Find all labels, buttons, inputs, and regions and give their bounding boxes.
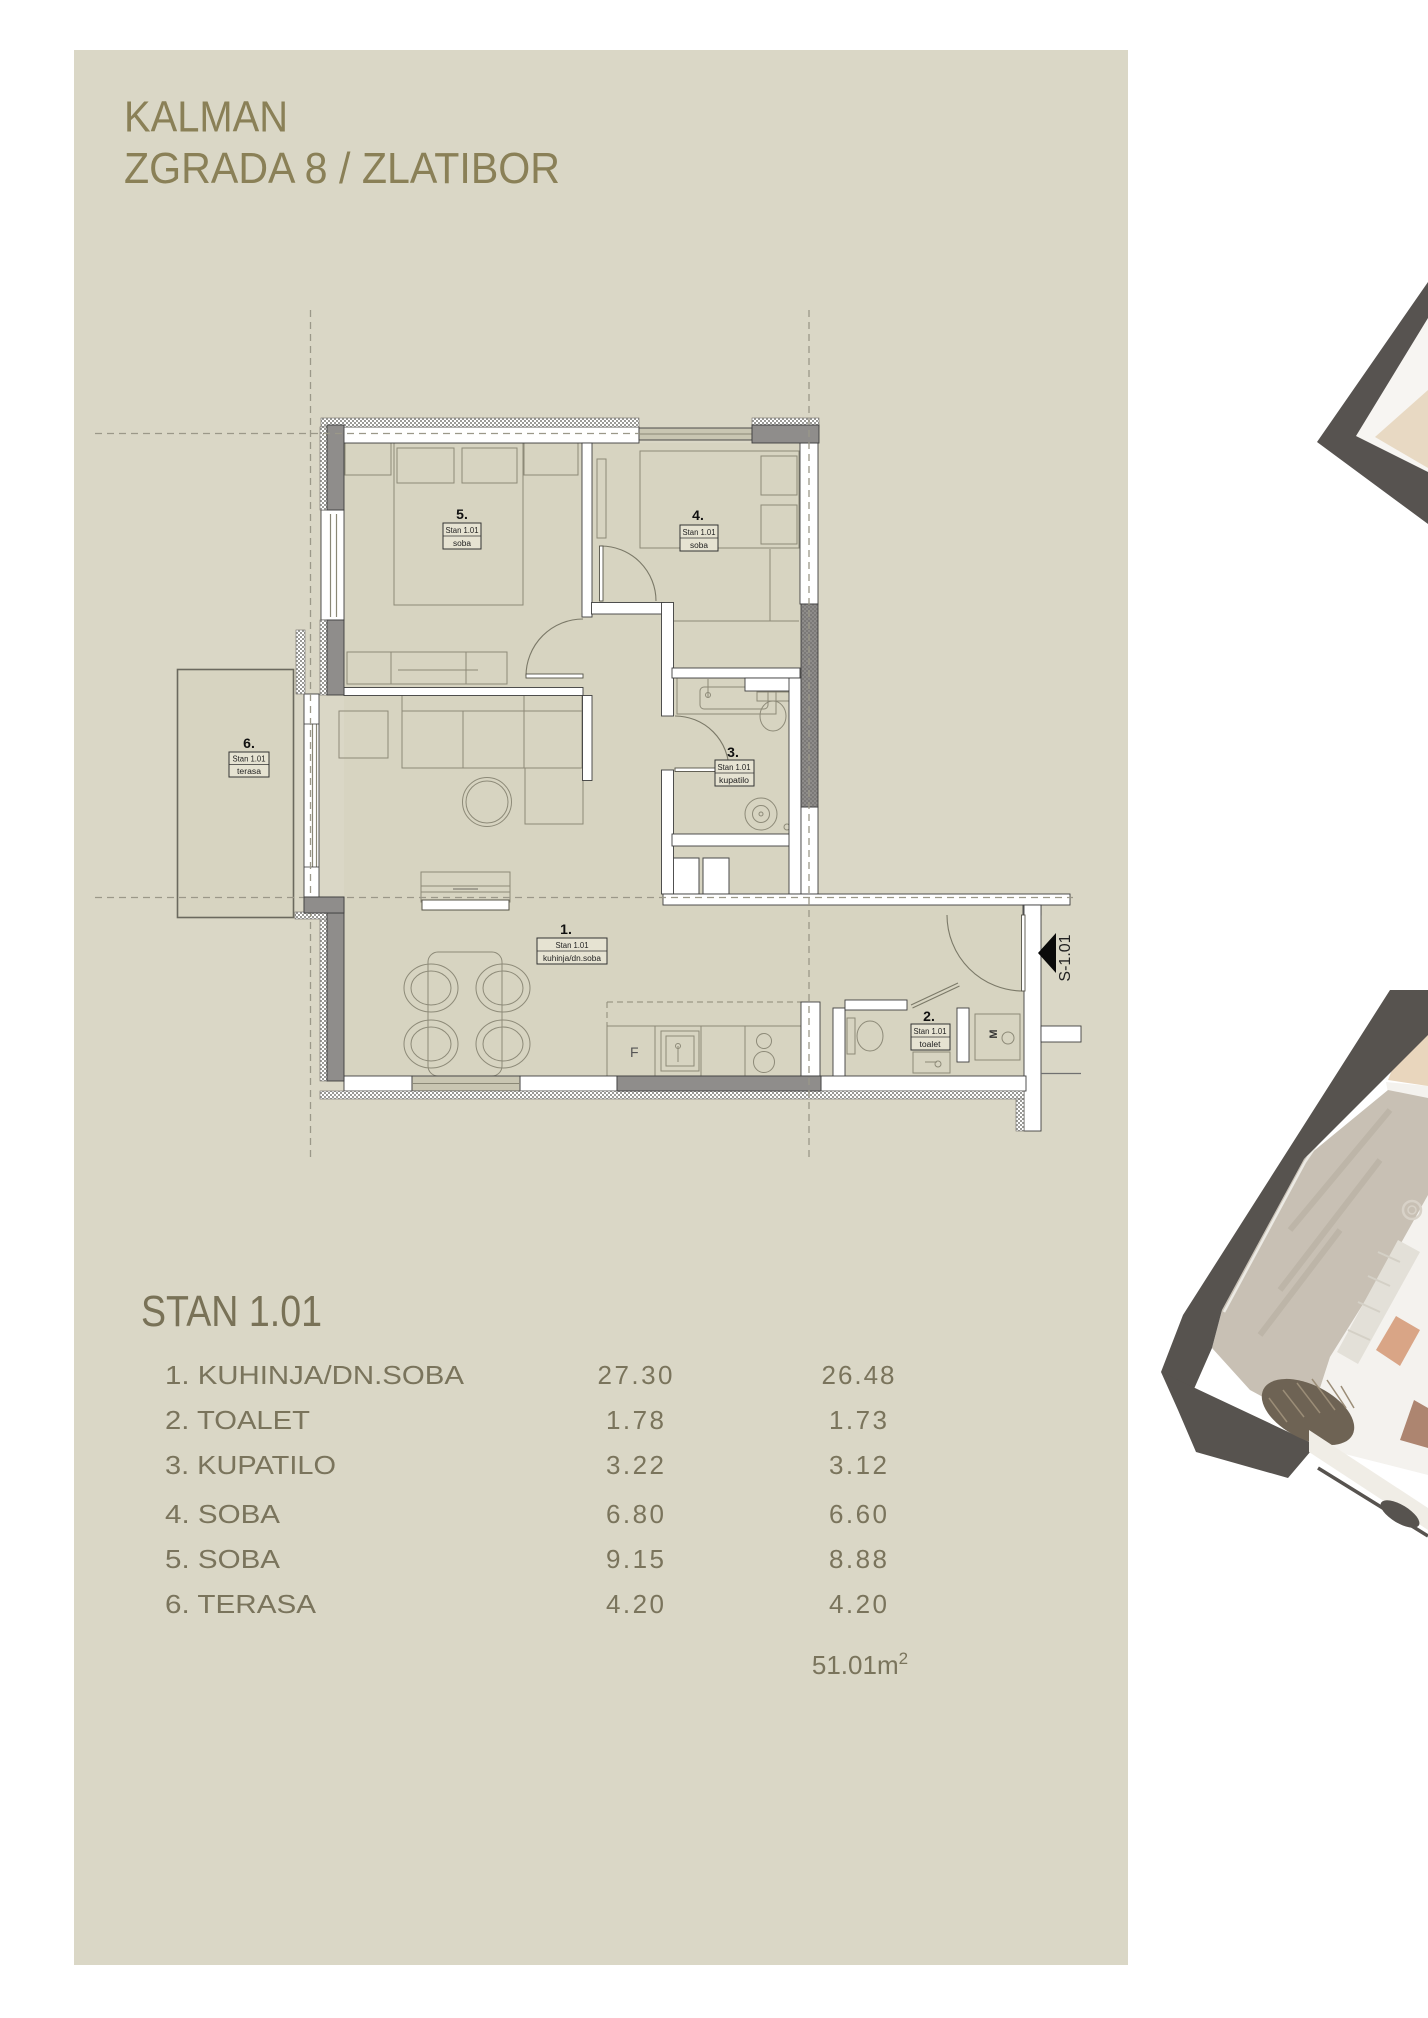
svg-text:51.01m2: 51.01m2 bbox=[812, 1649, 908, 1680]
svg-text:4. SOBA: 4. SOBA bbox=[165, 1499, 281, 1529]
svg-text:toalet: toalet bbox=[920, 1040, 942, 1049]
svg-text:6.80: 6.80 bbox=[606, 1499, 664, 1529]
svg-text:F: F bbox=[630, 1044, 639, 1060]
svg-text:8.88: 8.88 bbox=[829, 1544, 887, 1574]
svg-text:3.12: 3.12 bbox=[829, 1450, 887, 1480]
svg-text:kuhinja/dn.soba: kuhinja/dn.soba bbox=[543, 954, 602, 963]
svg-text:4.20: 4.20 bbox=[606, 1589, 664, 1619]
svg-text:Stan 1.01: Stan 1.01 bbox=[718, 763, 752, 772]
svg-text:M: M bbox=[988, 1029, 1000, 1038]
svg-text:3.22: 3.22 bbox=[606, 1450, 664, 1480]
svg-text:kupatilo: kupatilo bbox=[719, 776, 750, 785]
svg-text:9.15: 9.15 bbox=[606, 1544, 664, 1574]
svg-text:soba: soba bbox=[690, 541, 709, 550]
svg-text:soba: soba bbox=[453, 539, 472, 548]
svg-text:ZGRADA 8 / ZLATIBOR: ZGRADA 8 / ZLATIBOR bbox=[124, 144, 560, 193]
svg-text:5. SOBA: 5. SOBA bbox=[165, 1544, 281, 1574]
svg-text:KALMAN: KALMAN bbox=[124, 93, 288, 142]
svg-text:1. KUHINJA/DN.SOBA: 1. KUHINJA/DN.SOBA bbox=[165, 1360, 465, 1390]
svg-text:Stan 1.01: Stan 1.01 bbox=[446, 526, 480, 535]
svg-text:1.78: 1.78 bbox=[606, 1405, 664, 1435]
svg-text:Stan 1.01: Stan 1.01 bbox=[233, 755, 267, 764]
svg-text:6. TERASA: 6. TERASA bbox=[165, 1589, 317, 1619]
svg-text:4.: 4. bbox=[692, 507, 704, 523]
svg-text:4.20: 4.20 bbox=[829, 1589, 887, 1619]
svg-text:1.73: 1.73 bbox=[829, 1405, 887, 1435]
svg-text:3.: 3. bbox=[727, 744, 739, 760]
svg-text:STAN 1.01: STAN 1.01 bbox=[141, 1287, 322, 1336]
svg-text:5.: 5. bbox=[456, 506, 468, 522]
svg-text:Stan 1.01: Stan 1.01 bbox=[914, 1027, 948, 1036]
svg-text:terasa: terasa bbox=[237, 767, 262, 776]
svg-text:S-1.01: S-1.01 bbox=[1057, 934, 1074, 981]
svg-text:27.30: 27.30 bbox=[598, 1360, 673, 1390]
svg-text:Stan 1.01: Stan 1.01 bbox=[683, 528, 717, 537]
svg-text:6.: 6. bbox=[243, 735, 255, 751]
svg-text:1.: 1. bbox=[560, 921, 572, 937]
svg-text:26.48: 26.48 bbox=[822, 1360, 895, 1390]
svg-text:2.: 2. bbox=[923, 1008, 935, 1024]
svg-text:Stan 1.01: Stan 1.01 bbox=[556, 941, 590, 950]
svg-text:3. KUPATILO: 3. KUPATILO bbox=[165, 1450, 336, 1480]
svg-text:2. TOALET: 2. TOALET bbox=[165, 1405, 310, 1435]
svg-text:6.60: 6.60 bbox=[829, 1499, 887, 1529]
